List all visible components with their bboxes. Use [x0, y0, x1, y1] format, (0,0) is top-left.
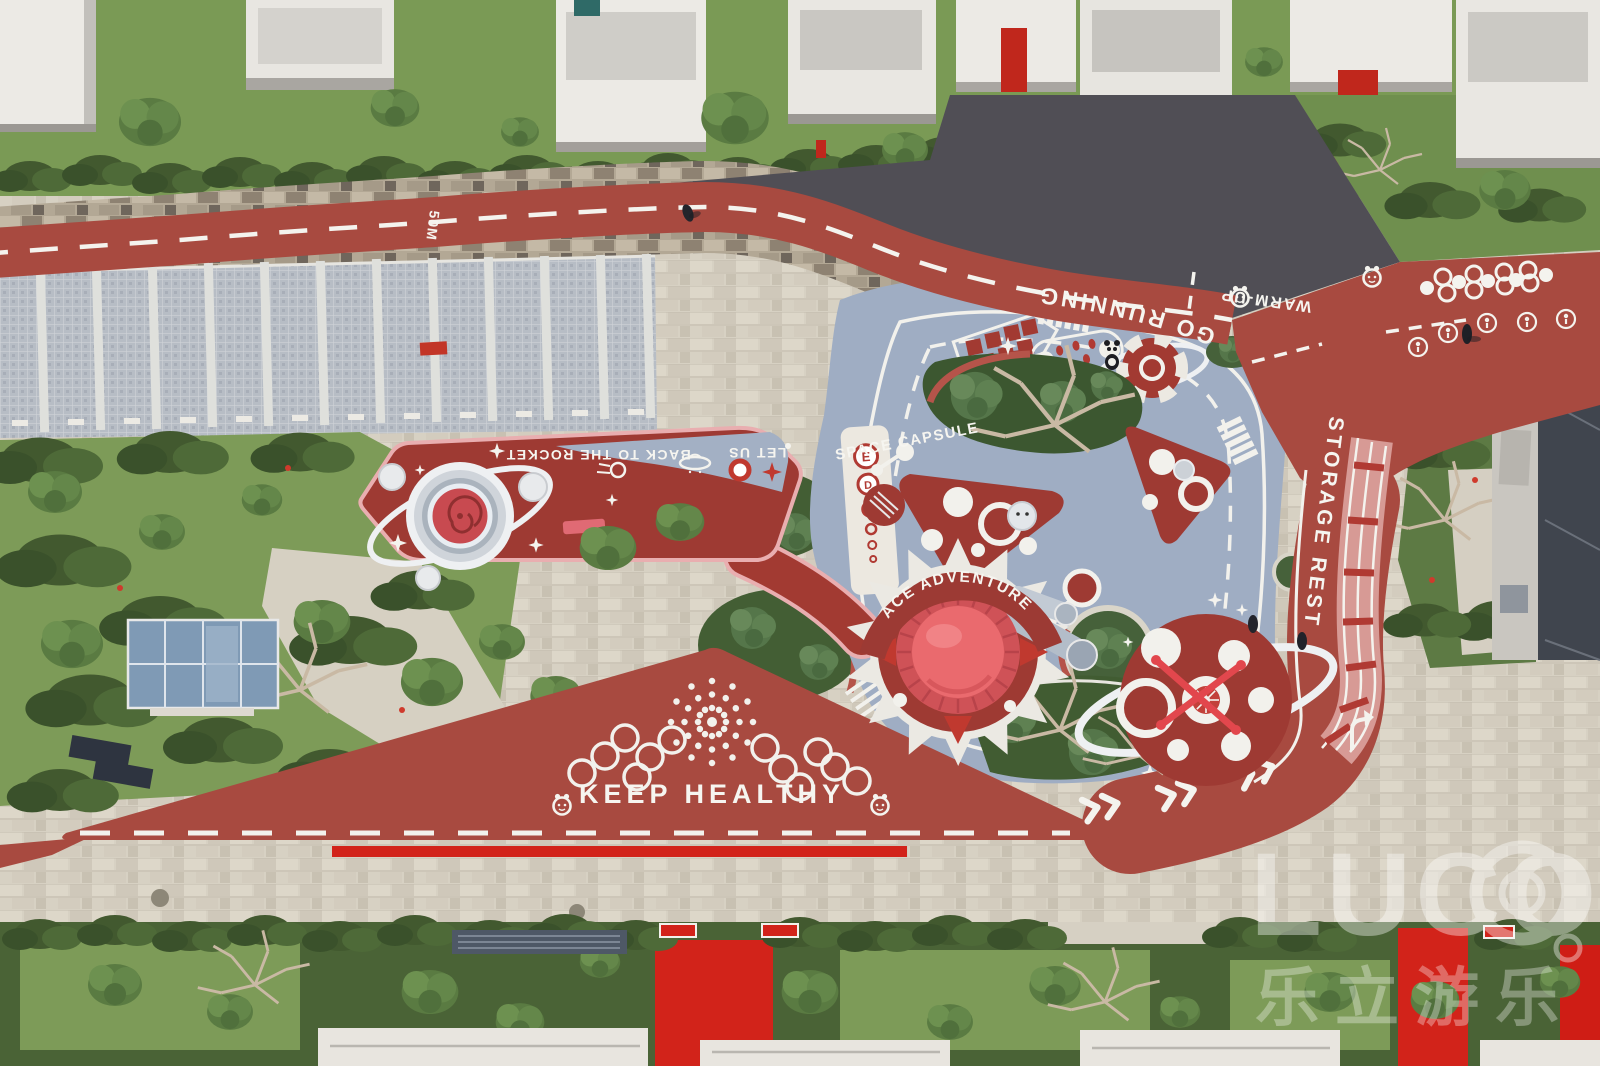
- bench: [452, 930, 627, 954]
- red-bench: [420, 341, 448, 355]
- watermark-cjk: 乐立游乐: [1255, 962, 1575, 1036]
- grid-water-feature: [0, 254, 657, 438]
- aerial-playground-photo: E D: [0, 0, 1600, 1066]
- glass-pavilion: [128, 620, 278, 716]
- let-us-label: LET US: [728, 445, 787, 461]
- red-walkway: [1001, 28, 1027, 92]
- hedge-gap-walk: [1048, 922, 1223, 944]
- red-accent: [816, 140, 826, 158]
- manhole: [151, 889, 169, 907]
- target-icon: [731, 461, 749, 479]
- watermark: LUCO 乐立游乐: [1250, 829, 1600, 1036]
- capsule-pod: [1008, 502, 1036, 530]
- panda-sculpture: [1104, 340, 1120, 370]
- spinner-pad: [863, 484, 905, 526]
- bright-red-strip: [332, 846, 907, 857]
- silver-ball: [1174, 460, 1194, 480]
- keep-healthy-label: KEEP HEALTHY: [579, 779, 845, 809]
- back-to-rocket-label: BACK TO THE ROCKET: [505, 447, 690, 463]
